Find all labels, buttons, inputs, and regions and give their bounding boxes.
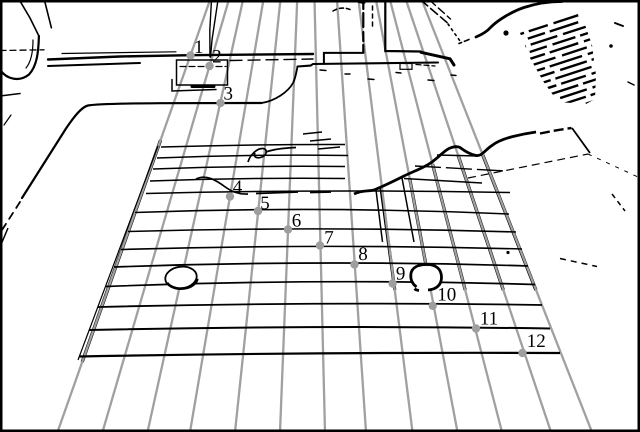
svg-text:6: 6 bbox=[292, 211, 302, 232]
svg-text:9: 9 bbox=[396, 264, 406, 285]
svg-text:4: 4 bbox=[233, 177, 243, 198]
svg-text:1: 1 bbox=[194, 37, 204, 58]
svg-text:11: 11 bbox=[480, 309, 498, 330]
svg-text:7: 7 bbox=[324, 228, 334, 249]
svg-text:12: 12 bbox=[527, 331, 546, 352]
svg-text:2: 2 bbox=[212, 47, 222, 68]
svg-text:3: 3 bbox=[224, 83, 234, 104]
svg-text:8: 8 bbox=[358, 244, 368, 265]
svg-text:5: 5 bbox=[260, 193, 270, 214]
svg-text:10: 10 bbox=[437, 285, 456, 306]
